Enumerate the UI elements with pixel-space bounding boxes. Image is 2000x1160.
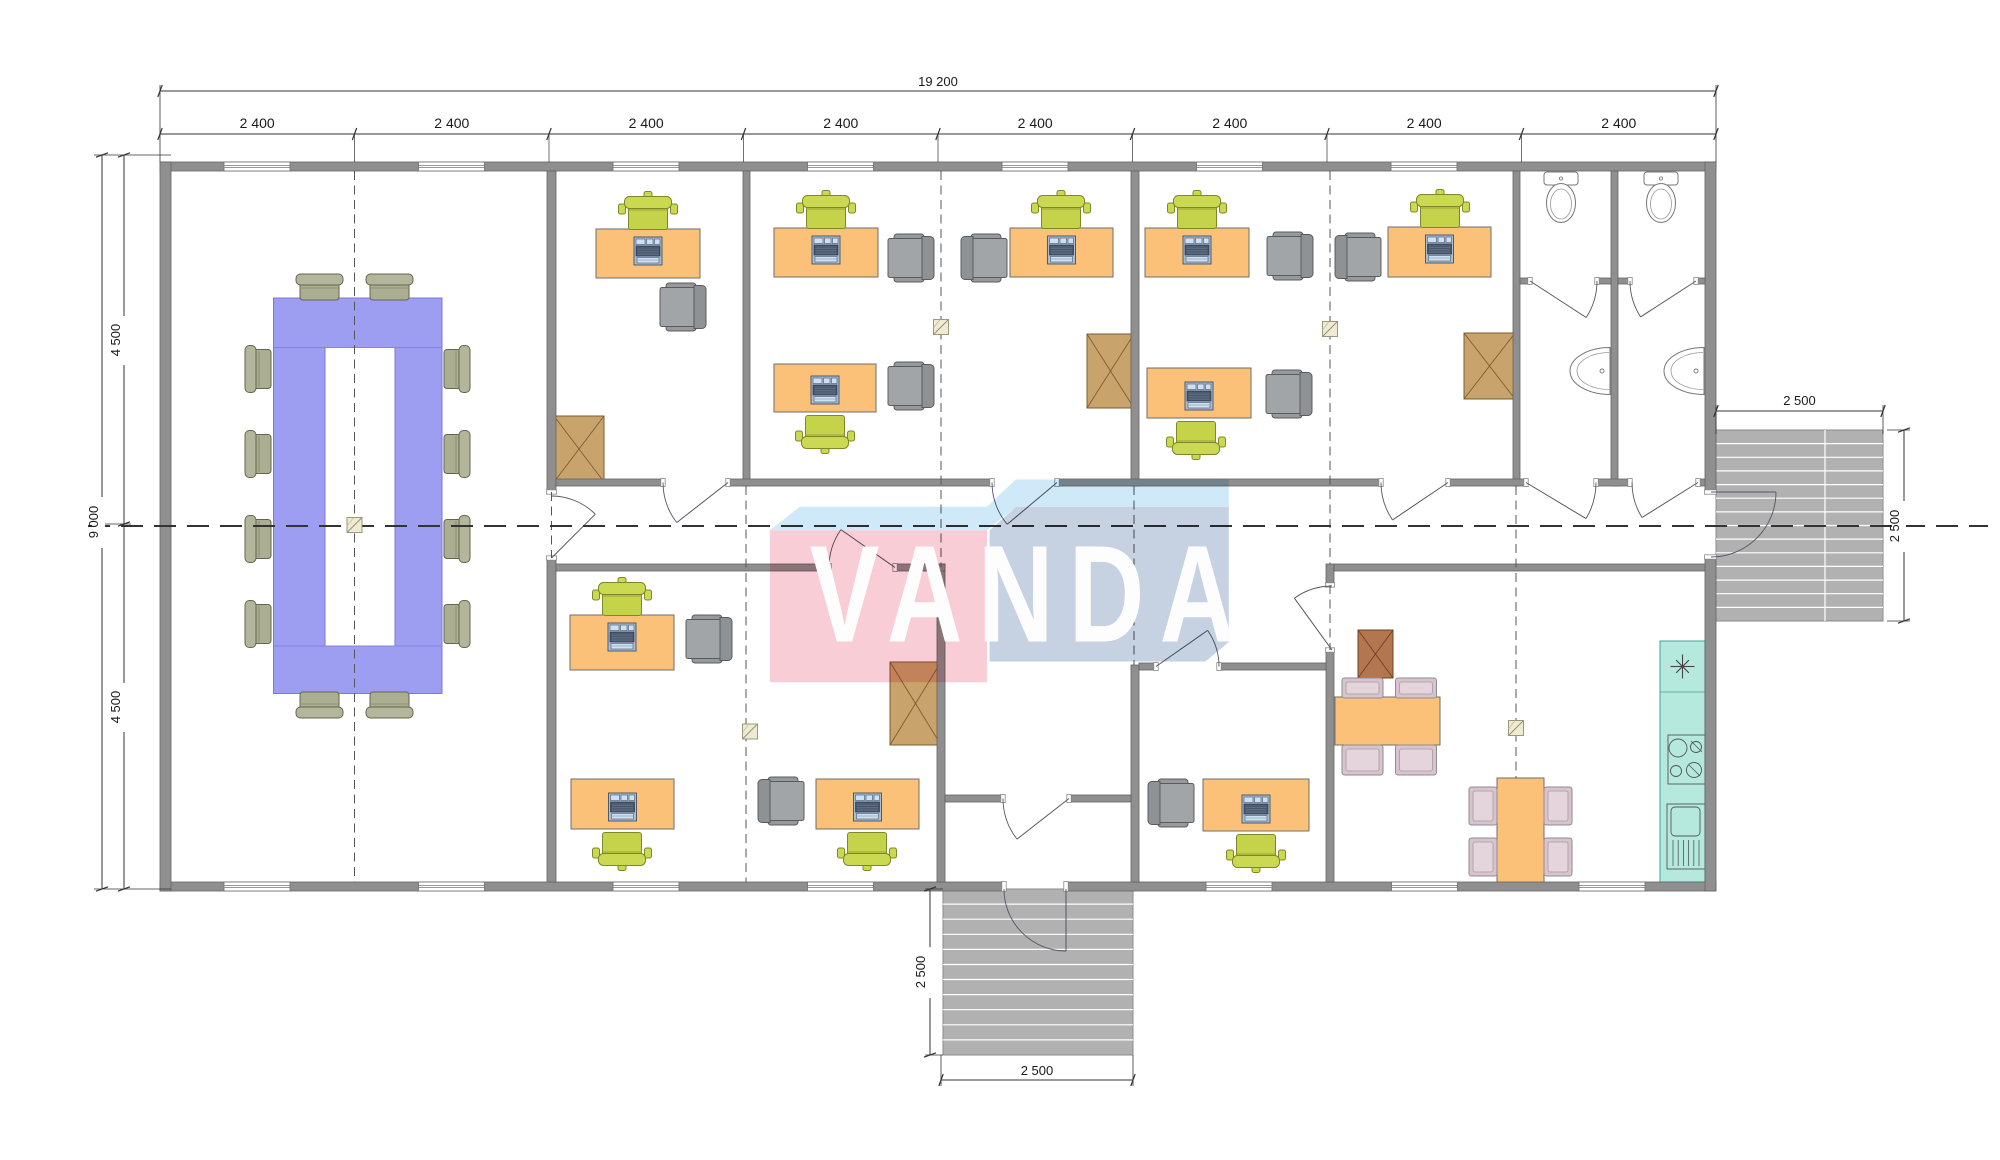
svg-text:4 500: 4 500 <box>108 691 123 724</box>
svg-text:2 500: 2 500 <box>1783 393 1816 408</box>
svg-text:2 500: 2 500 <box>1021 1063 1054 1078</box>
svg-text:2 400: 2 400 <box>1212 115 1247 131</box>
svg-text:2 400: 2 400 <box>240 115 275 131</box>
svg-text:19 200: 19 200 <box>918 74 958 89</box>
svg-text:2 400: 2 400 <box>434 115 469 131</box>
svg-text:2 400: 2 400 <box>629 115 664 131</box>
svg-text:2 400: 2 400 <box>1018 115 1053 131</box>
svg-text:2 400: 2 400 <box>1601 115 1636 131</box>
svg-text:9 000: 9 000 <box>86 506 101 539</box>
svg-text:2 500: 2 500 <box>1887 510 1902 543</box>
svg-text:2 400: 2 400 <box>1407 115 1442 131</box>
svg-text:2 500: 2 500 <box>913 956 928 989</box>
svg-text:2 400: 2 400 <box>823 115 858 131</box>
svg-text:VANDA: VANDA <box>809 517 1250 671</box>
svg-text:4 500: 4 500 <box>108 324 123 357</box>
